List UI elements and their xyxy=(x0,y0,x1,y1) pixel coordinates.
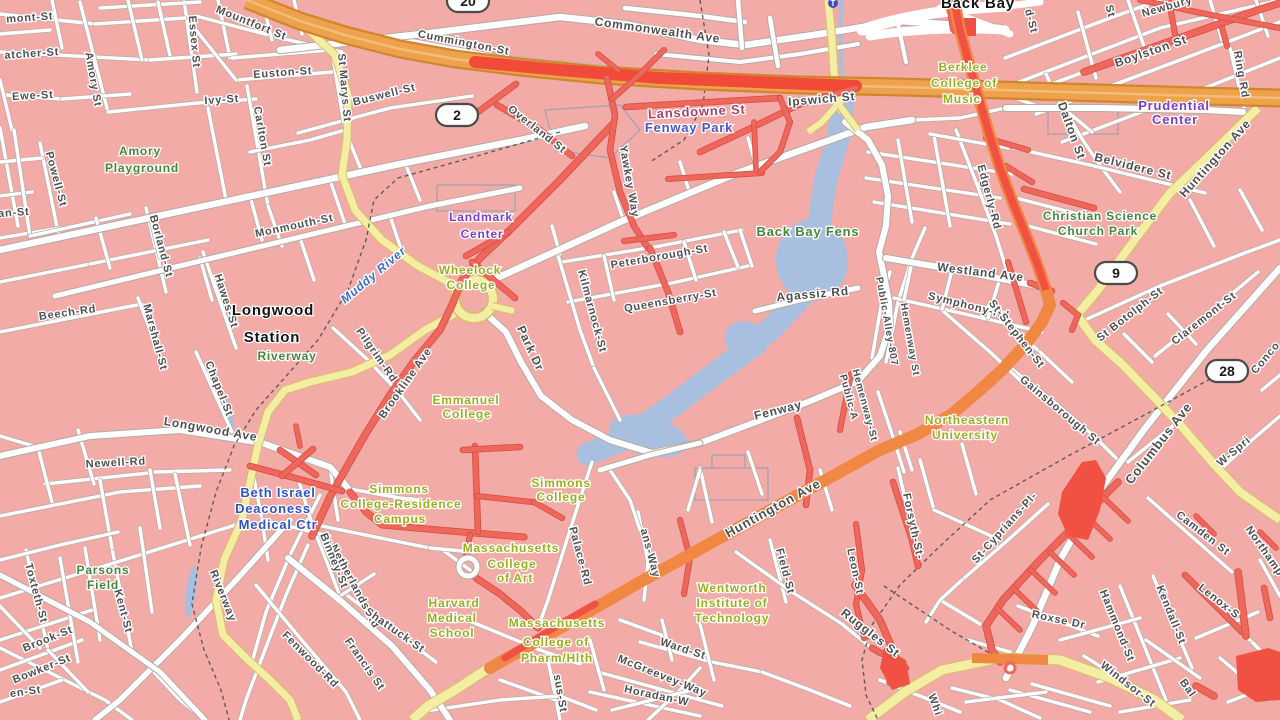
svg-text:College of: College of xyxy=(931,76,997,90)
svg-text:College-Residence: College-Residence xyxy=(341,497,462,511)
svg-text:Music: Music xyxy=(943,92,981,106)
svg-text:Medical Ctr: Medical Ctr xyxy=(239,517,318,532)
svg-text:Ivy-St: Ivy-St xyxy=(204,93,240,107)
svg-text:Christian Science: Christian Science xyxy=(1043,209,1157,223)
svg-text:Institute of: Institute of xyxy=(697,596,768,610)
svg-text:Deaconess: Deaconess xyxy=(235,501,311,516)
svg-text:Wentworth: Wentworth xyxy=(698,581,767,595)
svg-text:Back Bay: Back Bay xyxy=(941,0,1015,12)
svg-text:Pharm/Hlth: Pharm/Hlth xyxy=(521,651,593,665)
svg-text:20: 20 xyxy=(460,0,476,9)
svg-text:College: College xyxy=(537,490,586,504)
svg-text:University: University xyxy=(932,428,998,442)
svg-text:Ewe-St: Ewe-St xyxy=(12,89,54,103)
svg-text:Longwood: Longwood xyxy=(232,302,314,319)
svg-text:Parsons: Parsons xyxy=(77,563,130,577)
svg-text:Technology: Technology xyxy=(695,611,769,625)
svg-text:Northeastern: Northeastern xyxy=(925,413,1009,427)
svg-text:Massachusetts: Massachusetts xyxy=(463,541,559,555)
svg-text:Berklee: Berklee xyxy=(939,60,988,74)
svg-text:Riverway: Riverway xyxy=(257,349,316,363)
svg-text:Station: Station xyxy=(244,329,300,346)
svg-text:Harvard: Harvard xyxy=(429,596,480,610)
svg-text:Wheelock: Wheelock xyxy=(439,263,501,277)
svg-text:of Art: of Art xyxy=(497,571,533,585)
svg-text:Playground: Playground xyxy=(105,161,179,175)
svg-text:an-St: an-St xyxy=(0,206,30,220)
svg-text:Fenway Park: Fenway Park xyxy=(645,120,733,135)
svg-text:Prudential: Prudential xyxy=(1138,98,1210,113)
svg-text:Center: Center xyxy=(1152,112,1198,127)
svg-text:College: College xyxy=(443,407,492,421)
svg-text:Massachusetts: Massachusetts xyxy=(509,616,605,630)
svg-text:Medical: Medical xyxy=(427,611,477,625)
svg-text:9: 9 xyxy=(1112,265,1120,281)
svg-text:Campus: Campus xyxy=(374,512,426,526)
svg-text:28: 28 xyxy=(1219,363,1235,379)
svg-text:Beth Israel: Beth Israel xyxy=(240,485,315,500)
svg-text:College: College xyxy=(488,557,537,571)
svg-text:Landmark: Landmark xyxy=(449,210,513,224)
svg-text:Church Park: Church Park xyxy=(1058,224,1138,238)
svg-text:Simmons: Simmons xyxy=(369,482,429,496)
svg-text:College: College xyxy=(447,278,496,292)
svg-text:T: T xyxy=(831,0,836,8)
svg-text:College of: College of xyxy=(523,635,589,649)
svg-text:Simmons: Simmons xyxy=(531,476,591,490)
svg-text:School: School xyxy=(430,626,475,640)
svg-text:Amory: Amory xyxy=(119,144,161,158)
svg-text:Emmanuel: Emmanuel xyxy=(432,393,499,407)
svg-text:2: 2 xyxy=(453,107,461,123)
svg-text:Center: Center xyxy=(461,227,504,241)
svg-text:Back Bay Fens: Back Bay Fens xyxy=(757,224,860,239)
